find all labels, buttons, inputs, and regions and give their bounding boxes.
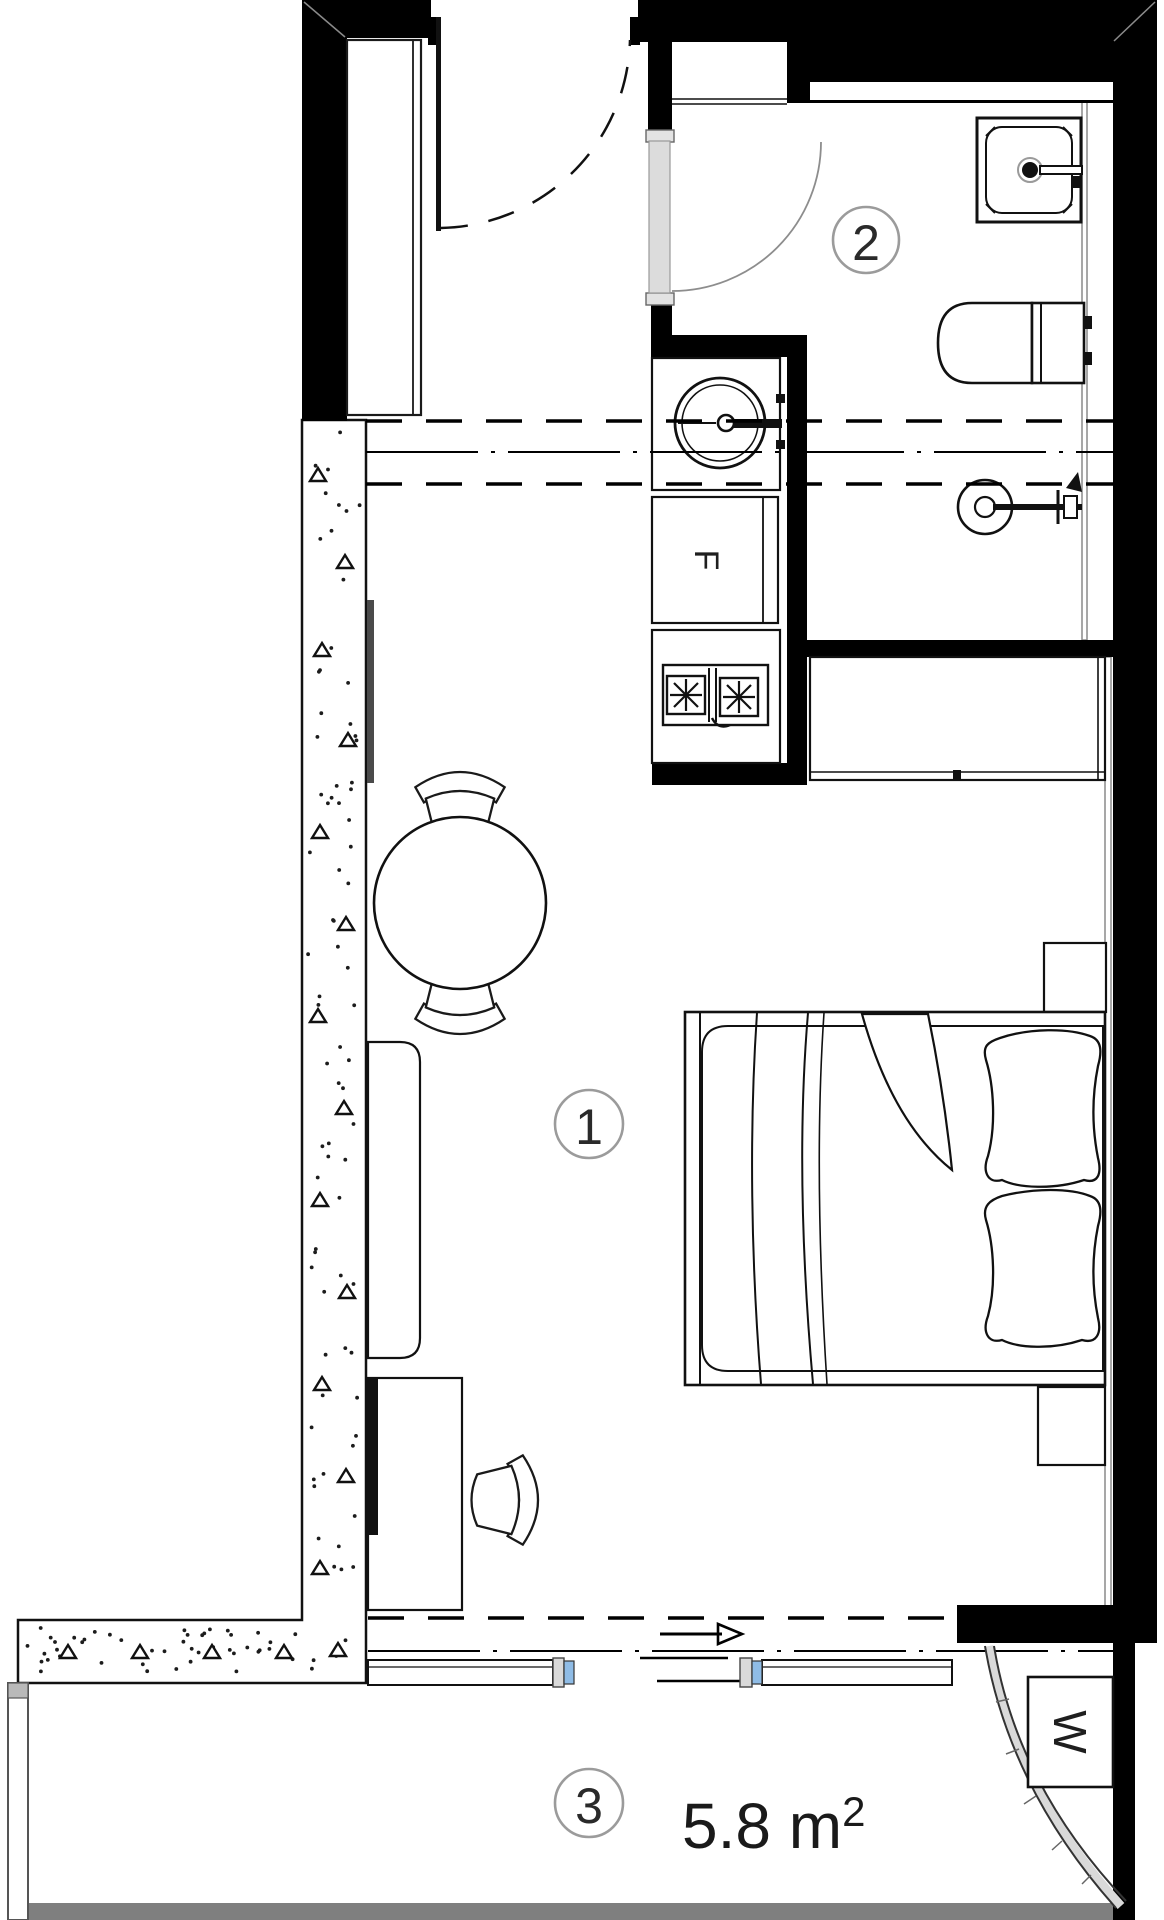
room-2-number: 2	[852, 215, 880, 271]
window-frame-right	[762, 1660, 952, 1685]
desk-edge	[368, 1378, 378, 1535]
glazing-mark-left	[564, 1661, 574, 1684]
bathroom-door-sill-bottom	[646, 293, 674, 305]
nightstand-bottom	[1038, 1387, 1105, 1465]
nightstand-top	[1044, 943, 1106, 1012]
entrance-door-leaf	[436, 17, 441, 231]
kitchen-faucet-head	[718, 415, 734, 431]
balcony-area-text: 5.8 m2	[682, 1788, 865, 1862]
room-label-1: 1	[555, 1090, 623, 1158]
wall-kitchen-bottom	[652, 763, 807, 785]
desk	[368, 1378, 462, 1610]
left-wall-pilaster	[367, 600, 374, 783]
toilet	[938, 303, 1092, 383]
wall-top-left-horizontal	[302, 0, 431, 38]
wall-bathroom-bottom	[807, 640, 1113, 657]
wall-right-column	[1113, 40, 1157, 1643]
washer-box: W	[1028, 1677, 1113, 1787]
floor-plan-drawing: F	[0, 0, 1164, 1920]
bed	[685, 1012, 1105, 1385]
glazing-mark-right	[752, 1661, 762, 1684]
bathroom-door-leaf	[649, 141, 670, 293]
tv-console	[368, 1042, 420, 1358]
bathroom-sink	[977, 118, 1082, 222]
stove-counter	[652, 630, 780, 763]
pillow-bottom	[985, 1190, 1100, 1347]
sink-faucet-base	[1072, 176, 1082, 188]
window-frame-left	[368, 1660, 553, 1685]
dining-table	[374, 817, 546, 989]
toilet-bowl	[938, 303, 1032, 383]
sink-faucet	[1040, 166, 1082, 174]
balcony-outer-edge	[28, 1903, 1113, 1920]
wall-balcony-separator	[957, 1605, 1113, 1643]
wall-recess-channel	[810, 82, 1113, 100]
bathroom-door-sill-top	[646, 130, 674, 142]
room-label-2: 2	[833, 207, 899, 273]
wall-right-lower	[1113, 1643, 1135, 1920]
kitchen-sink-counter	[652, 358, 785, 490]
room-label-3: 3	[555, 1769, 623, 1837]
shower-valve	[1064, 496, 1077, 518]
balcony-area-value: 5.8 m	[682, 1790, 842, 1862]
fridge-cabinet: F	[652, 497, 778, 623]
balcony-left-wall	[8, 1683, 28, 1920]
fridge-label: F	[687, 550, 725, 571]
window-post-right	[740, 1658, 752, 1687]
entry-wardrobe	[347, 40, 421, 415]
floor-plan-page: F	[0, 0, 1164, 1920]
pillow-top	[985, 1030, 1101, 1187]
washer-label: W	[1044, 1710, 1096, 1754]
room-1-number: 1	[575, 1099, 603, 1155]
balcony-left-wall-cap	[8, 1683, 28, 1698]
wall-cabinet	[810, 657, 1105, 780]
wall-bathroom-door-post	[648, 40, 672, 135]
wall-kitchen-bathroom	[787, 335, 807, 785]
wall-bathroom-jog-horizontal	[651, 335, 797, 357]
balcony-area-superscript: 2	[842, 1788, 865, 1835]
wall-top-left-vertical	[302, 0, 347, 421]
wall-niche-post	[787, 40, 810, 103]
toilet-tank	[1032, 303, 1084, 383]
room-3-number: 3	[575, 1778, 603, 1834]
wall-top-band	[638, 0, 1157, 42]
sink-drain	[1022, 162, 1038, 178]
window-post-left	[553, 1658, 564, 1687]
